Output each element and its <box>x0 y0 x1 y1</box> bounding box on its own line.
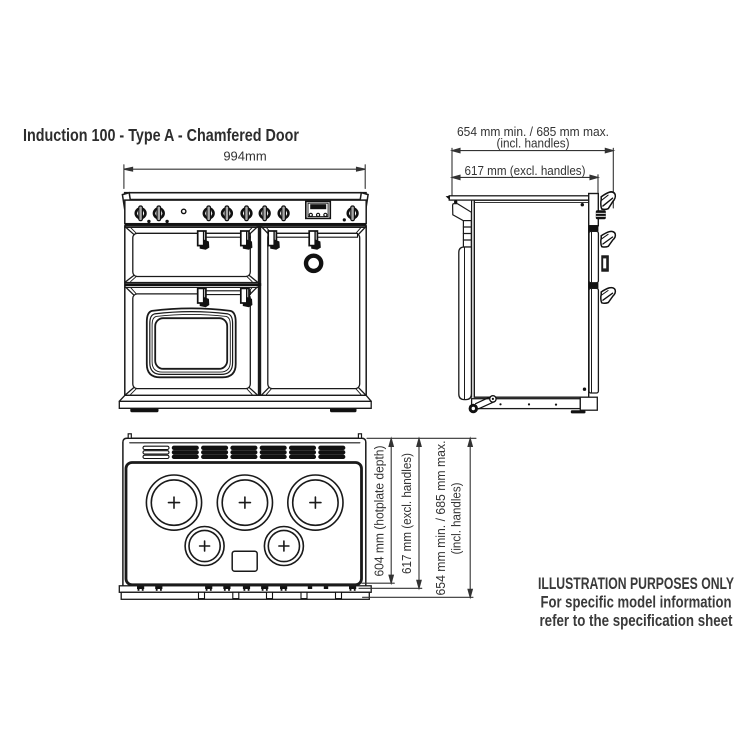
svg-text:refer to the specification she: refer to the specification sheet <box>540 612 733 630</box>
svg-text:994mm: 994mm <box>223 148 266 163</box>
svg-text:(incl. handles): (incl. handles) <box>497 136 570 151</box>
svg-text:(incl. handles): (incl. handles) <box>450 483 464 555</box>
svg-text:654 mm min. / 685 mm max.: 654 mm min. / 685 mm max. <box>434 441 448 596</box>
svg-text:617 mm (excl. handles): 617 mm (excl. handles) <box>400 453 414 574</box>
svg-text:Induction 100 - Type A - Chamf: Induction 100 - Type A - Chamfered Door <box>23 125 299 145</box>
svg-text:For specific model information: For specific model information <box>541 594 732 612</box>
svg-text:604 mm (hotplate depth): 604 mm (hotplate depth) <box>373 446 387 577</box>
svg-text:ILLUSTRATION PURPOSES ONLY: ILLUSTRATION PURPOSES ONLY <box>538 575 734 593</box>
svg-text:617 mm (excl. handles): 617 mm (excl. handles) <box>465 163 586 178</box>
